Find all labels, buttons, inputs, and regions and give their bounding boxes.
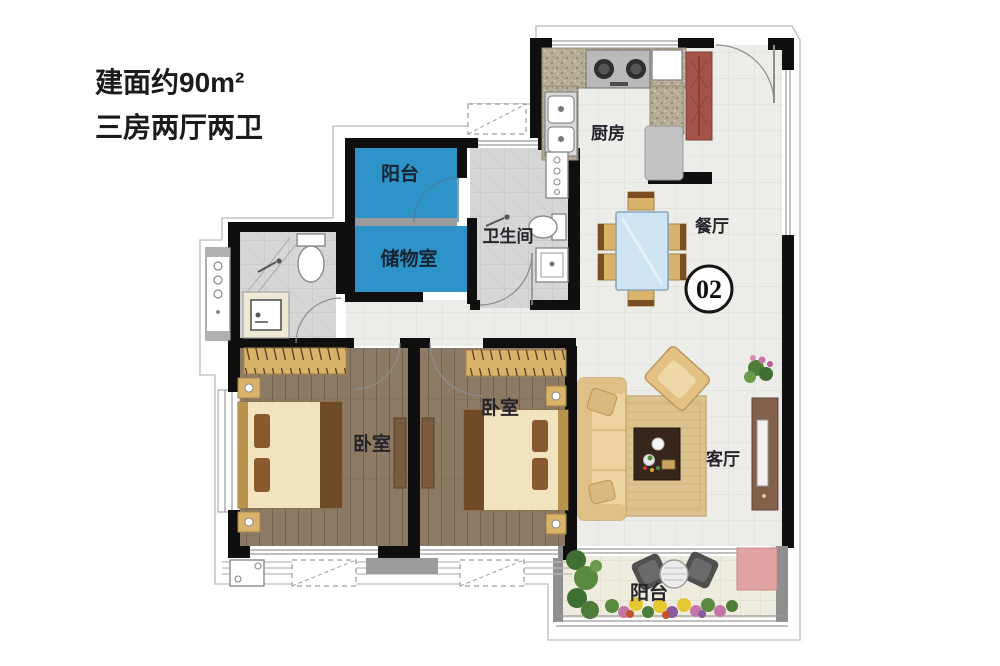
bay-window-left: [218, 382, 240, 520]
bathroom-label: 卫生间: [483, 226, 534, 246]
kitchen-sink-icon: [545, 92, 577, 156]
bathroom-top-window: [478, 138, 538, 148]
nightstand: [546, 514, 566, 534]
right-wall-window: [782, 70, 794, 235]
layout-title: 三房两厅两卫: [95, 111, 263, 143]
bed-middle: [464, 410, 568, 510]
ac-platform-mid: [460, 560, 524, 586]
nightstand: [546, 386, 566, 406]
dresser-middle: [422, 418, 434, 488]
kitchen-top-window: [552, 38, 678, 48]
unit-number: 02: [696, 275, 722, 304]
ac-platform-top: [468, 104, 526, 134]
stove-icon: [586, 50, 650, 88]
sofa: [578, 378, 626, 520]
coffee-table: [634, 428, 680, 480]
dining-chair: [668, 254, 686, 280]
bed-left: [238, 402, 342, 508]
bedroom-left-label: 卧室: [353, 432, 391, 455]
corner-appliance: [230, 560, 264, 586]
unit-badge: 02: [686, 266, 732, 312]
nightstand: [238, 512, 260, 532]
dining-chair: [668, 224, 686, 250]
floorplan-canvas: 02: [0, 0, 1000, 666]
area-title: 建面约90m²: [95, 67, 244, 98]
master-toilet-icon: [297, 234, 325, 282]
bedroom-middle-label: 卧室: [481, 396, 519, 419]
dresser-left: [394, 418, 406, 488]
dining-label: 餐厅: [695, 216, 729, 236]
living-label: 客厅: [705, 449, 740, 469]
ac-platform-left: [292, 560, 356, 586]
bedroom-middle-window: [420, 546, 558, 558]
tv-console: [752, 398, 778, 510]
bath-shelf: [546, 152, 568, 198]
storage-label: 储物室: [380, 247, 437, 270]
bedroom-left-window: [250, 546, 378, 558]
balcony-storage-divider: [355, 218, 457, 226]
dining-chair: [628, 192, 654, 210]
bath-sink-icon: [536, 248, 568, 282]
toilet-icon: [529, 214, 566, 240]
sill-center-block: [366, 558, 438, 574]
floorplan-page: 02: [0, 0, 1000, 666]
kitchen-cart: [645, 126, 683, 180]
utility-appliance: [206, 248, 230, 340]
balcony-bottom-label: 阳台: [630, 581, 668, 604]
balcony-mat: [737, 548, 777, 590]
kitchen-label: 厨房: [591, 123, 625, 143]
balcony-top-label: 阳台: [381, 162, 419, 185]
cutting-board: [652, 50, 682, 80]
nightstand: [238, 378, 260, 398]
dining-chair: [598, 224, 616, 250]
dining-chair: [598, 254, 616, 280]
master-sink-icon: [243, 292, 289, 338]
